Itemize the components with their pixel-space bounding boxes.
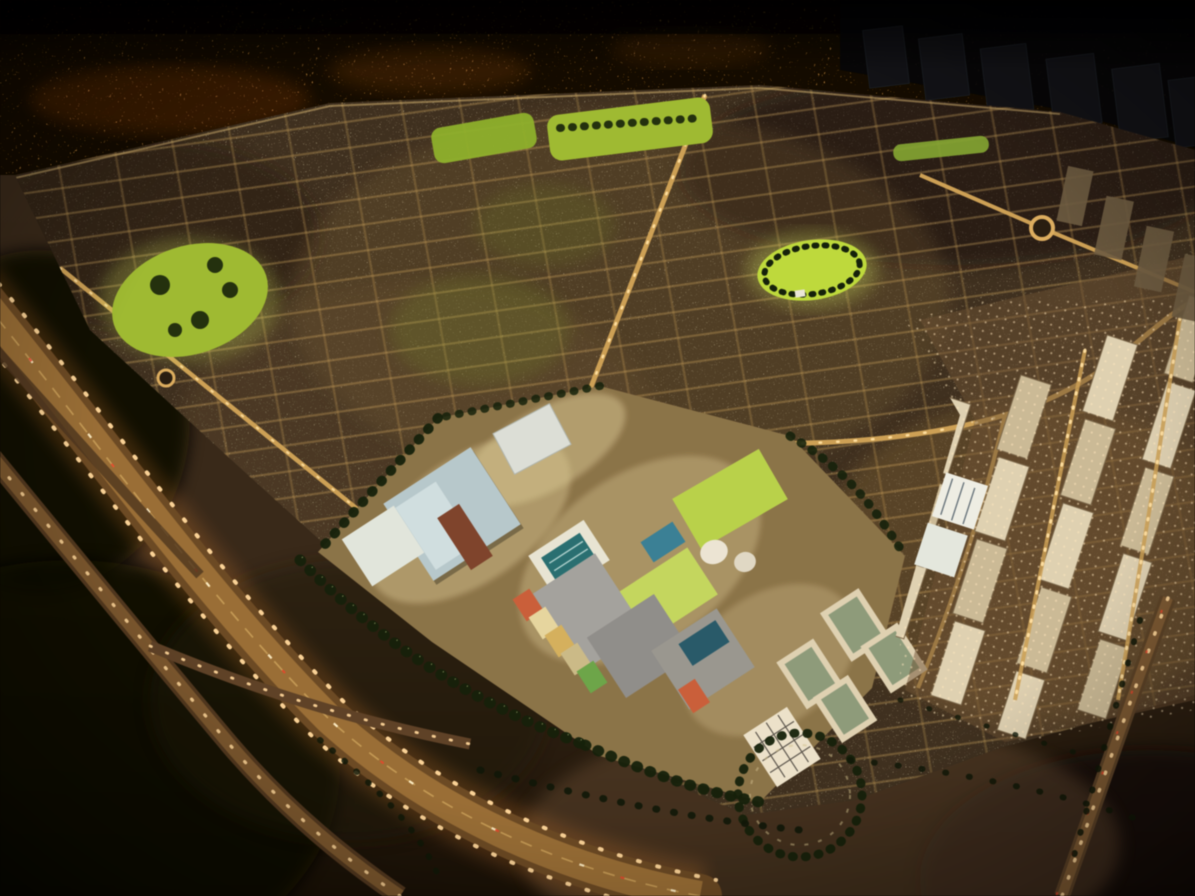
aerial-night-render — [0, 0, 1195, 896]
vignette — [0, 0, 1195, 896]
